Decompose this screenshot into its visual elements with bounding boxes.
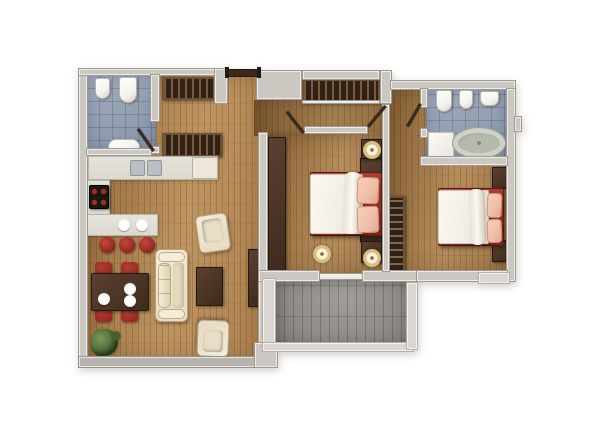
bidet [95, 78, 110, 99]
wall-bathroom2-left-jamb [420, 128, 428, 138]
balcony-parapet-left [262, 278, 276, 350]
wall-bathroom1-right [150, 74, 160, 122]
bar-stool-2 [119, 237, 135, 253]
wall-bathroom1-bottom [86, 148, 152, 156]
wall-wing-top [390, 80, 516, 90]
shower-mat [428, 132, 454, 158]
toilet [119, 77, 137, 103]
bedroom1-pillow-2 [357, 206, 380, 234]
dining-plate-1 [124, 283, 136, 295]
armchair-bottom [196, 319, 229, 357]
balcony-parapet-right [406, 282, 418, 350]
balcony-parapet-bottom [262, 342, 414, 352]
dining-plate-3 [124, 295, 136, 307]
cooktop [89, 185, 109, 209]
hall-wardrobe-lower [162, 133, 222, 157]
floor-balcony [275, 280, 413, 348]
wall-living-bottom [78, 356, 268, 368]
wall-bathroom2-bottom [420, 156, 508, 166]
coffee-table [196, 267, 223, 306]
wall-outer-top-left [78, 68, 218, 76]
sofa-backrest [158, 263, 171, 308]
wall-bedroom1-top-thin [302, 70, 380, 80]
bar-stool-3 [139, 237, 155, 253]
wall-outer-left [78, 68, 88, 368]
kitchen-appliance [192, 157, 218, 179]
bar-plate-2 [136, 219, 148, 231]
wall-between-bedrooms [382, 104, 390, 272]
sofa [155, 249, 188, 322]
bathroom2-toilet [436, 90, 452, 112]
bar-stool-1 [99, 237, 115, 253]
wall-bedroom1-north [304, 126, 368, 134]
bedroom1-wardrobe [268, 137, 286, 273]
bedroom1-lamp-2 [363, 249, 381, 267]
wall-bedroom1-top-block [256, 70, 302, 100]
bathtub [452, 127, 506, 159]
armchair-bottom-seat [203, 330, 224, 353]
armchair-top-seat [201, 218, 224, 244]
bar-plate-1 [118, 219, 130, 231]
floor-plan-canvas [0, 0, 600, 434]
bedroom1-pouf [313, 245, 331, 263]
wall-wing-bottom-step [478, 272, 510, 284]
sofa-seat [173, 263, 184, 308]
bedroom1-lamp-1 [363, 141, 381, 159]
bedroom2-blanket-fold [469, 189, 485, 245]
armchair-top [195, 212, 232, 254]
bathroom2-washbasin [480, 91, 499, 106]
bedroom1-pillow-1 [357, 177, 380, 205]
entrance-jamb-right [257, 67, 261, 78]
hall-wardrobe-upper [162, 77, 222, 100]
bedroom2-open-wardrobe [388, 196, 405, 274]
sofa-armrest-bottom [158, 309, 185, 319]
sofa-armrest-top [158, 252, 185, 262]
entrance-door [228, 69, 258, 77]
dining-plate-2 [98, 293, 110, 305]
dining-table [91, 273, 149, 311]
balcony-sliding-door [320, 273, 362, 280]
apartment-floor-plan [0, 0, 600, 434]
bathroom2-bidet [459, 90, 473, 109]
kitchen-sink-left [130, 160, 145, 176]
wall-closet-lip [302, 100, 380, 104]
bedroom2-pillow-2 [487, 219, 503, 244]
kitchen-sink-right [147, 160, 162, 176]
wall-bedroom1-south-right [362, 270, 420, 282]
bedroom2-pillow-1 [487, 193, 503, 219]
wall-wing-right-notch [514, 116, 522, 132]
